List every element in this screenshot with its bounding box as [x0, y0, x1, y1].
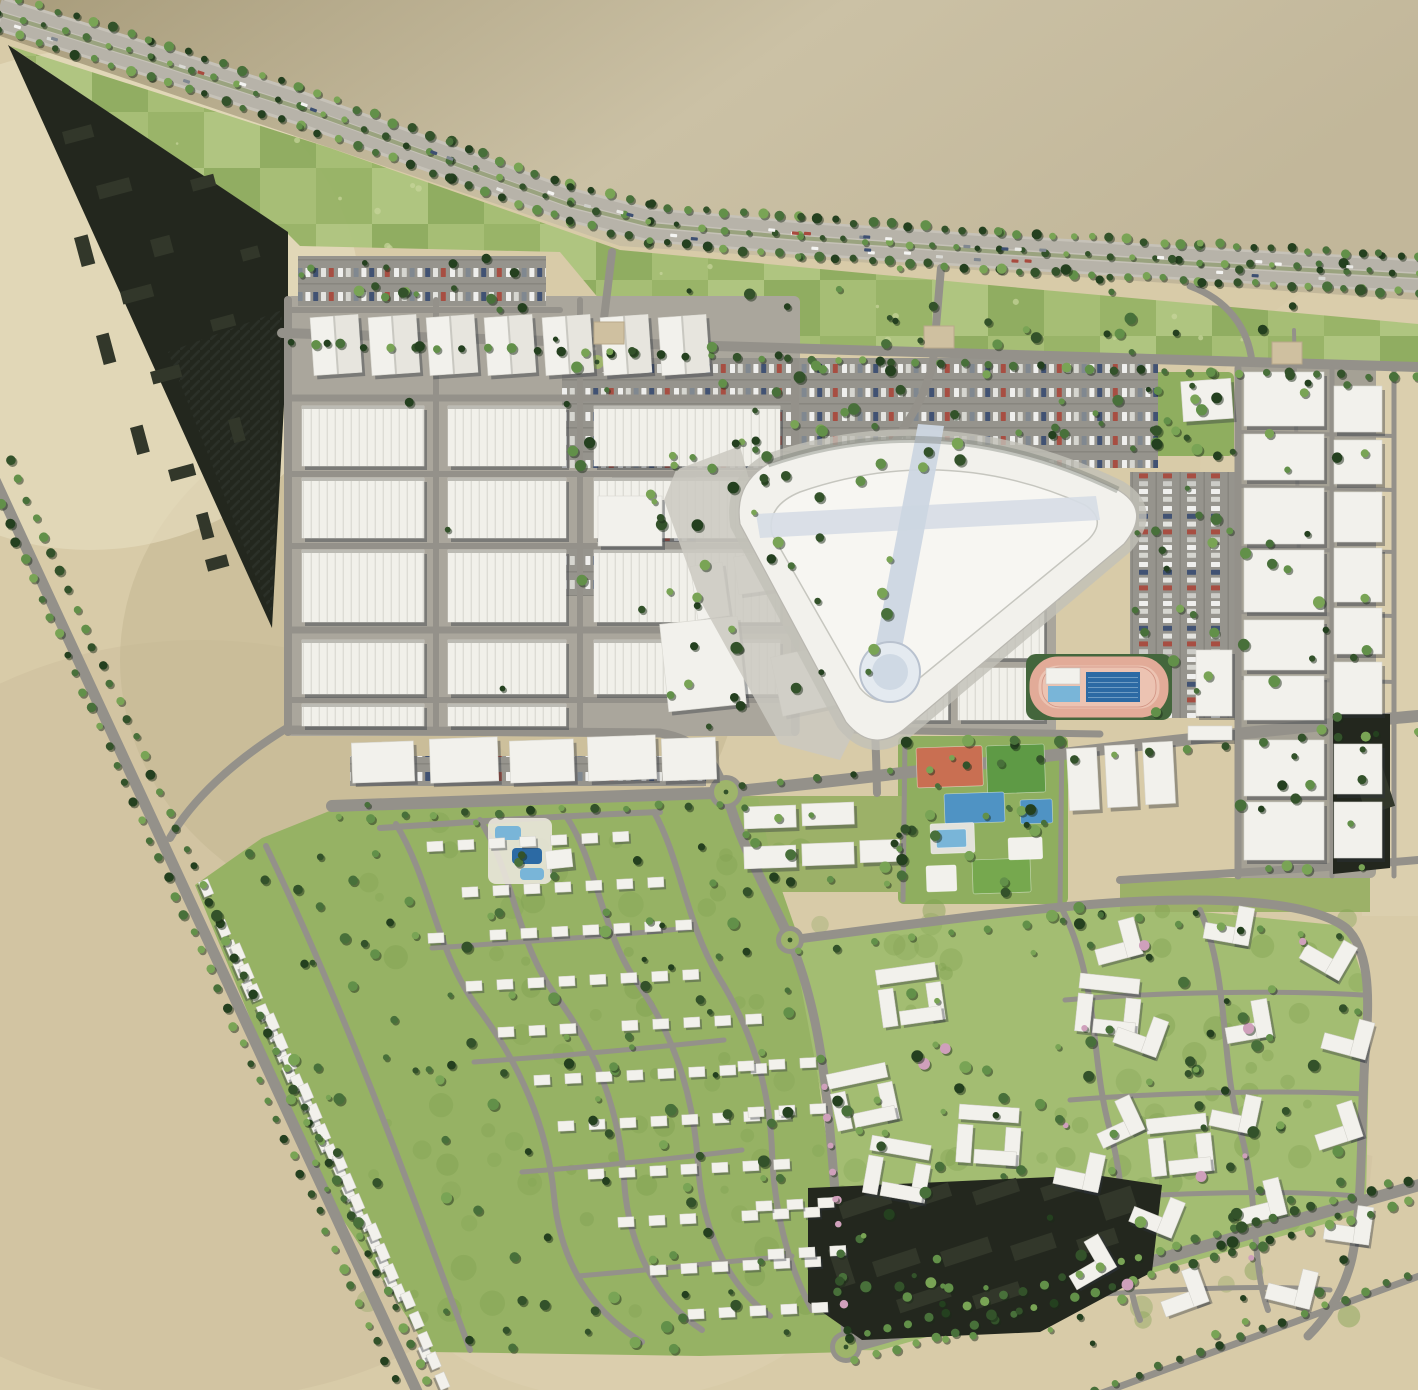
aquatic-track-center [1026, 654, 1172, 720]
masterplan-render [0, 0, 1418, 1390]
masterplan-svg [0, 0, 1418, 1390]
